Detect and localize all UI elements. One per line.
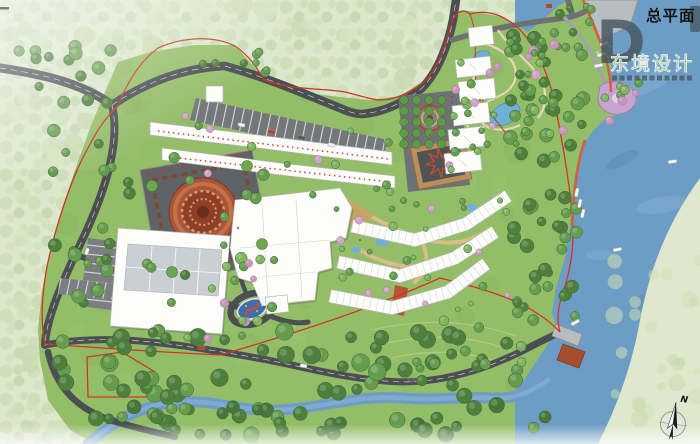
tree-icon <box>240 379 251 390</box>
tree-highlight <box>588 6 592 10</box>
tree-icon <box>437 140 446 149</box>
tree-highlight <box>386 140 389 143</box>
tree-highlight <box>578 51 583 56</box>
tree-icon <box>538 38 546 46</box>
tree-highlight <box>490 124 493 127</box>
tree-icon <box>389 222 398 231</box>
tree-highlight <box>335 207 337 209</box>
tree-highlight <box>621 87 625 91</box>
tree-highlight <box>372 344 377 349</box>
tree-icon <box>437 107 446 116</box>
tree-highlight <box>558 246 562 250</box>
faded-tree-blob <box>387 40 402 55</box>
sandbank-blob <box>608 274 623 289</box>
tree-highlight <box>285 162 288 165</box>
tree-highlight <box>526 72 529 75</box>
tree-highlight <box>491 399 498 406</box>
faded-tree-blob <box>409 3 420 14</box>
tree-icon <box>124 187 136 199</box>
tree-icon <box>505 95 517 107</box>
tree-highlight <box>462 206 464 208</box>
tree-icon <box>334 207 339 212</box>
tree-highlight <box>347 269 350 272</box>
tree-highlight <box>147 347 152 352</box>
faded-tree-blob <box>10 402 25 417</box>
tree-highlight <box>152 412 158 418</box>
tree-icon <box>104 414 114 424</box>
tree-highlight <box>514 300 518 304</box>
tree-icon <box>460 346 470 356</box>
tree-highlight <box>366 291 369 294</box>
tree-icon <box>576 49 588 61</box>
tree-highlight <box>315 157 318 160</box>
tree-icon <box>516 70 525 79</box>
tree-highlight <box>401 198 404 201</box>
tree-highlight <box>103 256 107 260</box>
tree-highlight <box>573 99 579 105</box>
tree-icon <box>538 263 551 276</box>
tree-icon <box>123 177 133 187</box>
tree-icon <box>383 287 390 294</box>
tree-highlight <box>338 238 341 241</box>
tree-highlight <box>560 293 564 297</box>
sandbank-blob <box>610 389 619 398</box>
tree-icon <box>431 412 443 424</box>
tree-highlight <box>565 113 570 118</box>
edge-tick-mark <box>0 7 9 10</box>
tree-highlight <box>557 11 561 15</box>
tree-highlight <box>517 149 522 154</box>
tree-icon <box>537 217 546 226</box>
tree-icon <box>102 355 116 369</box>
tree-icon <box>467 80 476 89</box>
tree-highlight <box>449 167 452 170</box>
tree-highlight <box>513 366 518 371</box>
tree-icon <box>411 255 416 260</box>
tree-icon <box>117 384 131 398</box>
faded-tree-blob <box>303 18 315 30</box>
tree-highlight <box>518 343 522 347</box>
tree-highlight <box>465 246 468 249</box>
tree-highlight <box>554 222 559 227</box>
tree-highlight <box>504 209 507 212</box>
tree-highlight <box>228 402 233 407</box>
tree-highlight <box>181 404 186 409</box>
tree-highlight <box>243 191 247 195</box>
tree-icon <box>565 139 577 151</box>
tree-icon <box>451 147 460 156</box>
tree-icon <box>577 120 586 129</box>
tree-icon <box>117 340 132 355</box>
tree-highlight <box>602 95 605 98</box>
tree-icon <box>72 289 86 303</box>
tree-icon <box>398 363 413 378</box>
tree-highlight <box>205 336 208 339</box>
tree-highlight <box>218 409 223 414</box>
tree-highlight <box>520 82 524 86</box>
tree-highlight <box>572 228 577 233</box>
tree-icon <box>530 105 539 114</box>
tree-highlight <box>223 263 227 267</box>
tree-icon <box>489 397 505 413</box>
tree-highlight <box>310 192 313 195</box>
tree-highlight <box>91 413 98 420</box>
tree-icon <box>303 346 321 364</box>
tree-icon <box>422 301 428 307</box>
tree-icon <box>400 107 409 116</box>
tree-highlight <box>538 218 542 222</box>
tree-icon <box>56 335 70 349</box>
tree-icon <box>346 268 354 276</box>
faded-tree-blob <box>13 364 24 375</box>
tree-highlight <box>432 414 437 419</box>
tree-icon <box>425 107 434 116</box>
sandbank-blob <box>607 254 622 269</box>
tree-icon <box>479 282 487 290</box>
tree-highlight <box>572 204 577 209</box>
tree-highlight <box>485 142 488 145</box>
tree-highlight <box>460 199 463 202</box>
tree-icon <box>505 292 510 297</box>
tree-highlight <box>458 60 461 63</box>
tree-icon <box>367 249 372 254</box>
tree-icon <box>150 410 163 423</box>
tree-highlight <box>551 91 556 96</box>
tree-icon <box>245 259 253 267</box>
tree-highlight <box>448 350 452 354</box>
tree-highlight <box>268 303 272 307</box>
sandbank-blob <box>656 364 666 374</box>
tree-highlight <box>462 347 466 351</box>
tree-highlight <box>525 118 529 122</box>
tree-icon <box>633 90 639 96</box>
tree-highlight <box>137 373 144 380</box>
tree-icon <box>242 189 253 200</box>
tree-icon <box>220 299 229 308</box>
tree-highlight <box>606 118 610 122</box>
tree-highlight <box>618 92 621 95</box>
tree-icon <box>256 255 265 264</box>
tree-highlight <box>371 366 379 374</box>
tree-highlight <box>531 272 536 277</box>
tree-icon <box>252 405 263 416</box>
tree-highlight <box>505 132 511 138</box>
tree-icon <box>500 337 513 350</box>
tree-icon <box>102 254 112 264</box>
tree-icon <box>400 118 409 127</box>
garden-clubhouse <box>468 25 494 47</box>
tree-highlight <box>633 91 636 94</box>
tree-highlight <box>636 80 639 83</box>
tree-highlight <box>567 6 570 9</box>
car-icon <box>198 346 205 350</box>
tree-highlight <box>148 264 152 268</box>
tree-icon <box>48 239 61 252</box>
tree-highlight <box>462 98 465 101</box>
tree-highlight <box>561 234 566 239</box>
tree-highlight <box>570 29 573 32</box>
tree-highlight <box>353 386 357 390</box>
tree-highlight <box>502 339 507 344</box>
tree-icon <box>484 141 491 148</box>
tree-icon <box>471 99 479 107</box>
tree-highlight <box>533 71 537 75</box>
tree-highlight <box>388 190 391 193</box>
tree-highlight <box>550 153 555 158</box>
tree-icon <box>446 349 457 360</box>
tree-icon <box>605 116 613 124</box>
tree-highlight <box>469 302 471 304</box>
tree-icon <box>474 323 484 333</box>
tree-highlight <box>246 261 249 264</box>
tree-icon <box>528 314 539 325</box>
faded-tree-blob <box>13 230 30 247</box>
tree-icon <box>339 274 347 282</box>
tree-highlight <box>149 329 153 333</box>
tree-icon <box>147 263 157 273</box>
tree-highlight <box>93 286 98 291</box>
tree-highlight <box>237 254 242 259</box>
tree-highlight <box>356 217 359 220</box>
tree-highlight <box>453 87 456 90</box>
tree-icon <box>571 97 584 110</box>
tree-highlight <box>560 193 565 198</box>
tree-icon <box>439 316 449 326</box>
masterplan-image: N D 东境设计 总平面 <box>0 0 700 444</box>
tree-highlight <box>242 380 247 385</box>
tree-icon <box>494 63 502 71</box>
tree-highlight <box>429 206 432 209</box>
tree-icon <box>52 355 67 370</box>
tree-highlight <box>495 64 498 67</box>
tree-highlight <box>347 333 352 338</box>
tree-icon <box>455 307 460 312</box>
tree-icon <box>382 181 390 189</box>
sandbank-blob <box>606 307 623 324</box>
tree-icon <box>160 333 171 344</box>
tree-highlight <box>551 30 555 34</box>
tree-icon <box>539 95 548 104</box>
tree-icon <box>558 191 571 204</box>
tree-icon <box>437 129 446 138</box>
tree-icon <box>515 147 528 160</box>
sandbank-blob <box>657 382 665 390</box>
tree-icon <box>531 70 540 79</box>
tree-highlight <box>537 60 540 63</box>
tree-highlight <box>213 371 220 378</box>
tree-highlight <box>273 412 278 417</box>
tree-highlight <box>448 381 453 386</box>
faded-tree-blob <box>400 15 418 33</box>
tree-highlight <box>505 293 507 295</box>
tree-highlight <box>514 309 519 314</box>
tree-highlight <box>390 223 394 227</box>
tree-icon <box>167 298 175 306</box>
tree-icon <box>217 408 229 420</box>
sandbank-blob <box>645 321 658 334</box>
tree-highlight <box>340 247 342 249</box>
sandbank-blob <box>629 296 641 308</box>
tree-highlight <box>517 71 521 75</box>
tree-icon <box>557 244 567 254</box>
tree-highlight <box>391 273 394 276</box>
faded-tree-blob <box>16 189 32 205</box>
tree-highlight <box>240 263 244 267</box>
tree-icon <box>559 291 569 301</box>
tree-icon <box>413 358 422 367</box>
sandbank-blob <box>616 347 628 359</box>
tree-highlight <box>187 177 191 181</box>
tree-highlight <box>563 44 567 48</box>
tree-highlight <box>540 97 544 101</box>
faded-tree-blob <box>420 56 434 70</box>
tree-icon <box>521 127 530 136</box>
tree-highlight <box>539 53 542 56</box>
tree-highlight <box>105 415 109 419</box>
tree-highlight <box>572 313 576 317</box>
tree-highlight <box>232 277 236 281</box>
tree-highlight <box>423 302 425 304</box>
tree-highlight <box>452 148 456 152</box>
tree-highlight <box>119 386 125 392</box>
tree-icon <box>545 189 556 200</box>
tree-icon <box>276 322 294 340</box>
tree-highlight <box>413 327 420 334</box>
tree-highlight <box>544 283 548 287</box>
tree-highlight <box>70 250 76 256</box>
tree-icon <box>412 107 421 116</box>
tree-icon <box>412 129 421 138</box>
tree-highlight <box>333 162 336 165</box>
tree-icon <box>412 118 421 127</box>
tree-icon <box>448 166 455 173</box>
tree-highlight <box>125 189 130 194</box>
tree-icon <box>489 123 495 129</box>
tree-highlight <box>481 360 486 365</box>
flag-marker <box>546 4 552 8</box>
tree-highlight <box>540 265 546 271</box>
tree-highlight <box>192 331 199 338</box>
tree-highlight <box>259 171 264 176</box>
tree-highlight <box>447 163 450 166</box>
tree-highlight <box>182 385 188 391</box>
tree-icon <box>464 110 471 117</box>
tree-icon <box>227 401 240 414</box>
sandbank-blob <box>661 269 672 280</box>
tree-highlight <box>271 257 274 260</box>
faded-tree-blob <box>26 401 37 412</box>
tree-icon <box>507 221 520 234</box>
tree-highlight <box>551 41 555 45</box>
tree-highlight <box>531 285 536 290</box>
tree-highlight <box>465 111 468 114</box>
tree-highlight <box>453 332 460 339</box>
tree-highlight <box>340 275 343 278</box>
tree-icon <box>425 129 434 138</box>
plan-title: 总平面 <box>646 6 696 25</box>
tree-highlight <box>475 149 478 152</box>
tree-highlight <box>487 70 490 73</box>
tree-highlight <box>440 317 444 321</box>
tree-highlight <box>108 339 112 343</box>
tree-highlight <box>529 316 534 321</box>
tree-icon <box>337 361 348 372</box>
tree-icon <box>211 369 229 387</box>
tree-highlight <box>532 51 535 54</box>
tree-highlight <box>492 113 495 116</box>
tree-icon <box>403 256 411 264</box>
tree-icon <box>437 118 446 127</box>
tree-icon <box>425 140 434 149</box>
tree-icon <box>520 239 534 253</box>
tree-highlight <box>511 112 516 117</box>
tree-highlight <box>375 187 378 190</box>
tree-icon <box>348 128 354 134</box>
tree-highlight <box>510 375 516 381</box>
tree-icon <box>346 332 357 343</box>
sandbank-blob <box>649 270 660 281</box>
tree-icon <box>437 96 446 105</box>
sandbank-blob <box>692 367 700 375</box>
tree-icon <box>497 198 503 204</box>
terrain-blob <box>491 176 507 192</box>
tree-highlight <box>115 331 122 338</box>
tree-highlight <box>368 250 370 252</box>
tree-highlight <box>431 360 435 364</box>
tree-highlight <box>526 55 529 58</box>
tree-highlight <box>102 265 108 271</box>
tree-highlight <box>539 39 542 42</box>
tree-icon <box>513 141 519 147</box>
tree-highlight <box>412 256 414 258</box>
tree-highlight <box>563 210 567 214</box>
tree-highlight <box>185 335 188 338</box>
tree-icon <box>101 264 114 277</box>
tree-highlight <box>254 318 258 322</box>
tree-highlight <box>106 240 111 245</box>
tree-highlight <box>480 283 483 286</box>
tree-icon <box>531 50 538 57</box>
tree-icon <box>570 226 582 238</box>
tree-highlight <box>205 171 208 174</box>
tree-highlight <box>518 359 522 363</box>
tree-highlight <box>257 256 261 260</box>
tree-highlight <box>384 288 387 291</box>
tree-highlight <box>144 260 148 264</box>
tree-highlight <box>547 131 550 134</box>
tree-highlight <box>507 96 512 101</box>
tree-highlight <box>479 129 482 132</box>
tree-icon <box>365 290 372 297</box>
tree-icon <box>516 341 526 351</box>
faded-tree-blob <box>382 80 398 96</box>
tree-highlight <box>415 202 418 205</box>
tree-highlight <box>320 385 327 392</box>
tree-icon <box>530 283 541 294</box>
tree-icon <box>524 116 534 126</box>
sandbank-blob <box>667 354 678 365</box>
tree-highlight <box>541 413 546 418</box>
tree-highlight <box>239 318 243 322</box>
tree-icon <box>222 262 231 271</box>
tree-highlight <box>523 128 527 132</box>
car-icon <box>408 378 415 382</box>
tree-icon <box>238 332 245 339</box>
tree-icon <box>549 151 560 162</box>
watermark-name: 东境设计 <box>610 52 694 75</box>
tree-icon <box>277 346 294 363</box>
tree-highlight <box>182 271 186 275</box>
